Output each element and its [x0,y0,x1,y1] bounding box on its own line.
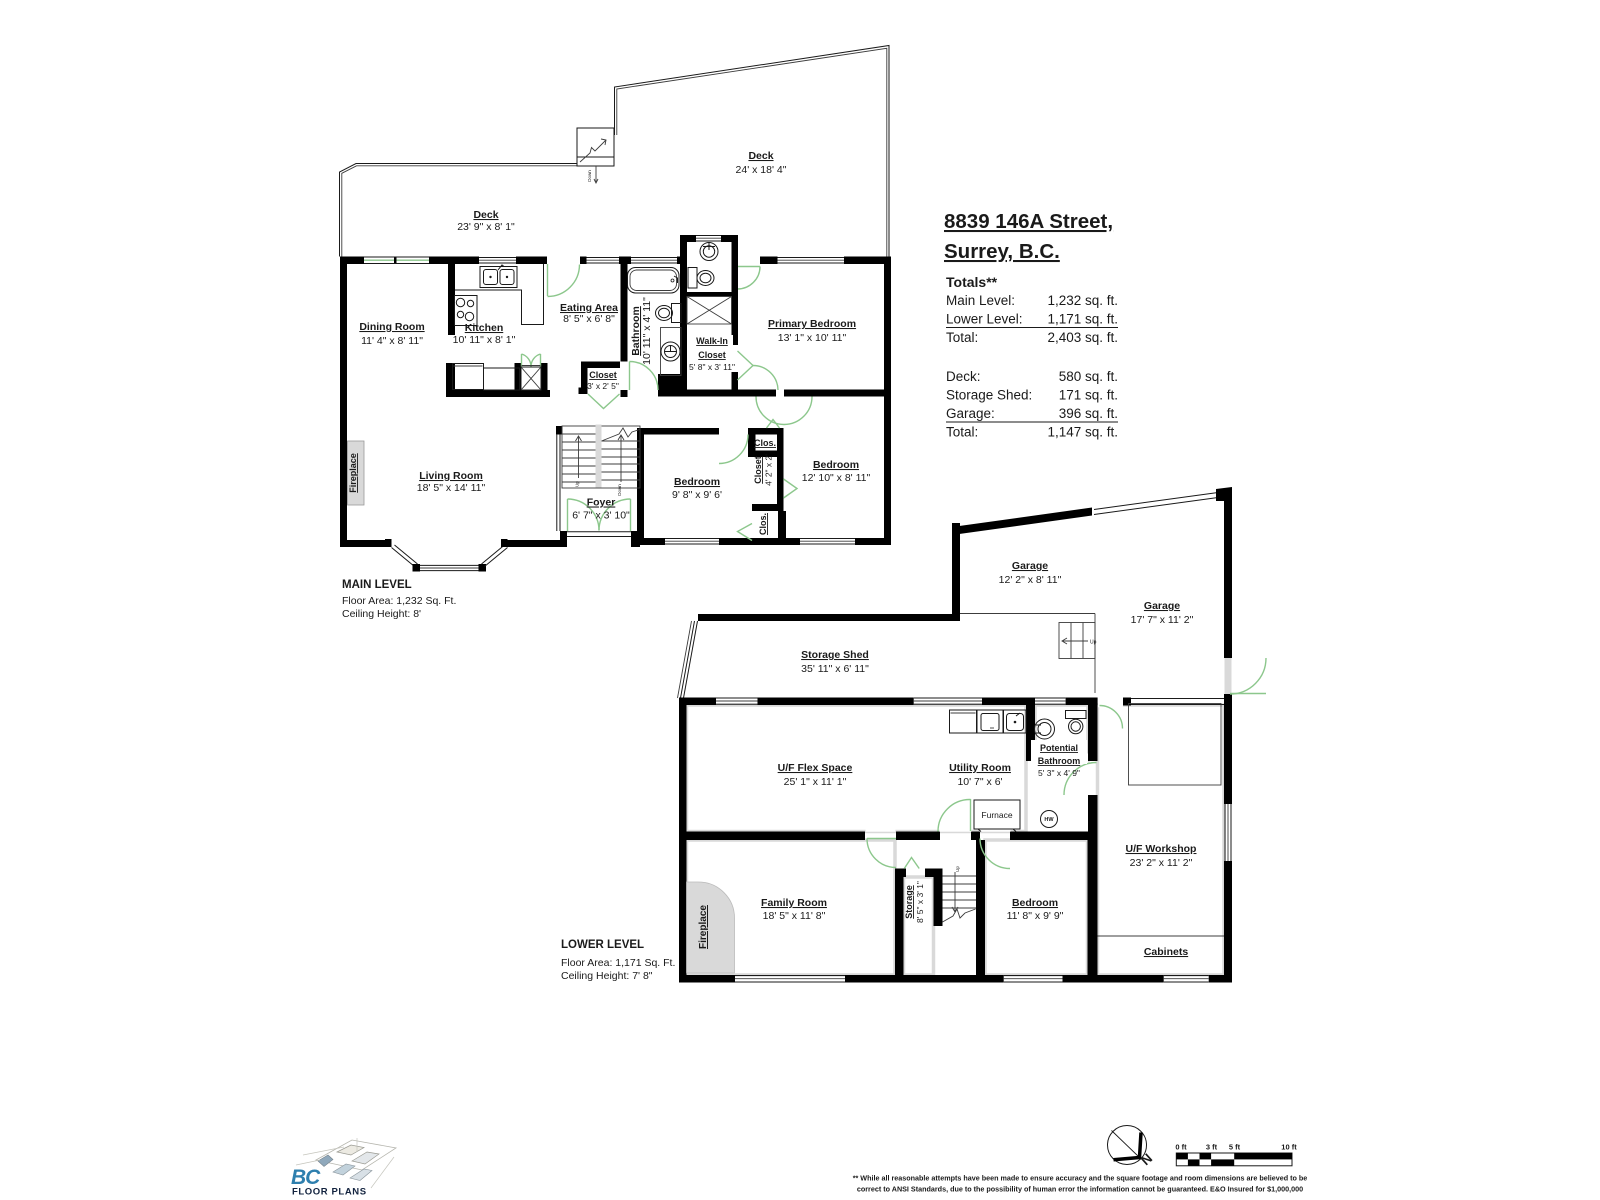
svg-text:Cabinets: Cabinets [1144,946,1189,958]
svg-text:** While all reasonable attemp: ** While all reasonable attempts have be… [853,1174,1308,1183]
svg-text:Deck: Deck [748,150,773,162]
svg-text:Ceiling Height: 8': Ceiling Height: 8' [342,608,421,620]
svg-text:Dining Room: Dining Room [359,321,424,333]
svg-text:Garage:: Garage: [946,406,995,421]
svg-text:Potential: Potential [1040,743,1078,753]
svg-text:1,232 sq. ft.: 1,232 sq. ft. [1047,293,1118,308]
svg-text:13' 1" x 10' 11": 13' 1" x 10' 11" [778,332,847,344]
svg-text:Fireplace: Fireplace [698,905,709,949]
svg-text:Main Level:: Main Level: [946,293,1015,308]
svg-text:Primary Bedroom: Primary Bedroom [768,318,856,330]
svg-text:17' 7" x 11' 2": 17' 7" x 11' 2" [1131,614,1194,626]
svg-text:Walk-In: Walk-In [696,336,728,346]
svg-text:3 ft: 3 ft [1206,1143,1218,1152]
svg-text:Clos.: Clos. [754,438,776,448]
svg-text:Closet: Closet [589,370,617,380]
svg-text:0 ft: 0 ft [1175,1143,1187,1152]
svg-text:Clos.: Clos. [758,513,768,535]
svg-text:Living Room: Living Room [419,470,483,482]
svg-text:U/F Flex Space: U/F Flex Space [778,762,853,774]
svg-text:396 sq. ft.: 396 sq. ft. [1059,406,1118,421]
svg-text:Deck: Deck [473,209,498,221]
svg-text:2,403 sq. ft.: 2,403 sq. ft. [1047,330,1118,345]
svg-text:10' 11" x 8' 1": 10' 11" x 8' 1" [453,334,516,346]
svg-text:23' 2" x 11' 2": 23' 2" x 11' 2" [1130,857,1193,869]
svg-text:23' 9" x 8' 1": 23' 9" x 8' 1" [457,221,515,233]
svg-text:FLOOR PLANS: FLOOR PLANS [292,1187,367,1198]
svg-text:MAIN LEVEL: MAIN LEVEL [342,579,412,591]
svg-text:Totals**: Totals** [946,274,998,290]
svg-text:35' 11" x 6' 11": 35' 11" x 6' 11" [801,663,869,675]
svg-text:Floor Area: 1,171 Sq. Ft.: Floor Area: 1,171 Sq. Ft. [561,957,675,969]
svg-text:Up: Up [1090,640,1097,646]
svg-text:24' x 18' 4": 24' x 18' 4" [736,164,787,176]
svg-text:1,171 sq. ft.: 1,171 sq. ft. [1047,312,1118,327]
svg-text:Deck:: Deck: [946,369,981,384]
svg-text:18' 5" x 14' 11": 18' 5" x 14' 11" [417,482,486,494]
svg-text:6' 7" x 3' 10": 6' 7" x 3' 10" [572,510,630,522]
svg-text:12' 2" x 8' 11": 12' 2" x 8' 11" [999,574,1062,586]
svg-text:Garage: Garage [1012,560,1048,572]
svg-text:12' 10" x 8' 11": 12' 10" x 8' 11" [802,472,871,484]
svg-text:1,147 sq. ft.: 1,147 sq. ft. [1047,425,1118,440]
svg-text:Bedroom: Bedroom [1012,897,1058,909]
svg-text:Bathroom: Bathroom [1038,756,1081,766]
svg-text:25' 1" x 11' 1": 25' 1" x 11' 1" [784,776,847,788]
svg-text:Down: Down [587,170,592,182]
svg-text:11' 4" x 8' 11": 11' 4" x 8' 11" [361,335,423,347]
svg-text:Family Room: Family Room [761,897,827,909]
svg-text:Garage: Garage [1144,600,1180,612]
svg-text:8839 146A Street,: 8839 146A Street, [944,210,1113,233]
svg-text:11' 8" x 9' 9": 11' 8" x 9' 9" [1007,910,1064,922]
svg-text:LOWER LEVEL: LOWER LEVEL [561,939,644,951]
svg-text:8' 5" x 6' 8": 8' 5" x 6' 8" [563,313,615,325]
svg-text:18' 5" x 11' 8": 18' 5" x 11' 8" [763,910,826,922]
svg-text:Bedroom: Bedroom [674,476,720,488]
svg-text:HW: HW [1044,817,1054,823]
svg-text:Up: Up [575,481,580,487]
svg-text:Ceiling Height: 7' 8": Ceiling Height: 7' 8" [561,970,653,982]
svg-text:Floor Area: 1,232 Sq. Ft.: Floor Area: 1,232 Sq. Ft. [342,595,456,607]
svg-text:5 ft: 5 ft [1229,1143,1241,1152]
svg-text:Fireplace: Fireplace [348,453,358,493]
svg-text:Bedroom: Bedroom [813,459,859,471]
svg-text:Surrey, B.C.: Surrey, B.C. [944,240,1060,263]
svg-text:4' 2" x 2': 4' 2" x 2' [764,454,774,486]
svg-text:Storage: Storage [904,885,914,919]
svg-text:171 sq. ft.: 171 sq. ft. [1059,388,1118,403]
svg-text:Down: Down [617,484,622,496]
svg-text:Lower Level:: Lower Level: [946,312,1023,327]
svg-text:10' 11" x 4' 11": 10' 11" x 4' 11" [641,297,653,365]
svg-text:Utility Room: Utility Room [949,762,1011,774]
svg-text:Storage Shed:: Storage Shed: [946,388,1032,403]
svg-text:Closet: Closet [698,350,726,360]
svg-text:5' 8" x 3' 11": 5' 8" x 3' 11" [689,362,735,372]
svg-text:8' 5" x 3' 1": 8' 5" x 3' 1" [915,881,925,923]
svg-text:Foyer: Foyer [587,497,616,509]
svg-text:correct to ANSI Standards, due: correct to ANSI Standards, due to the po… [857,1185,1303,1194]
svg-text:Kitchen: Kitchen [465,322,504,334]
svg-text:Total:: Total: [946,330,978,345]
svg-text:Closet: Closet [753,456,763,484]
svg-text:Up: Up [955,866,960,872]
svg-text:Furnace: Furnace [981,810,1012,820]
svg-text:10 ft: 10 ft [1281,1143,1297,1152]
svg-text:U/F Workshop: U/F Workshop [1126,843,1197,855]
svg-text:3' x 2' 5": 3' x 2' 5" [587,381,619,391]
svg-text:580 sq. ft.: 580 sq. ft. [1059,369,1118,384]
svg-text:Total:: Total: [946,425,978,440]
svg-text:10' 7" x 6': 10' 7" x 6' [957,776,1002,788]
svg-text:Storage Shed: Storage Shed [801,649,869,661]
svg-text:5' 3" x 4' 9": 5' 3" x 4' 9" [1038,768,1080,778]
svg-text:9' 8" x 9' 6': 9' 8" x 9' 6' [672,489,722,501]
